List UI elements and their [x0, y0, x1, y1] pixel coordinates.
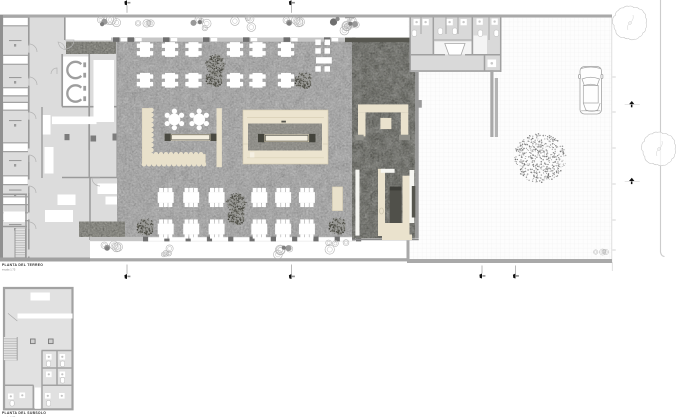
svg-text:escala 1:75: escala 1:75 [2, 268, 16, 272]
svg-text:PLANTA DEL TERREO: PLANTA DEL TERREO [2, 263, 43, 267]
svg-text:PLANTA DEL SUBSOLO: PLANTA DEL SUBSOLO [2, 411, 46, 415]
